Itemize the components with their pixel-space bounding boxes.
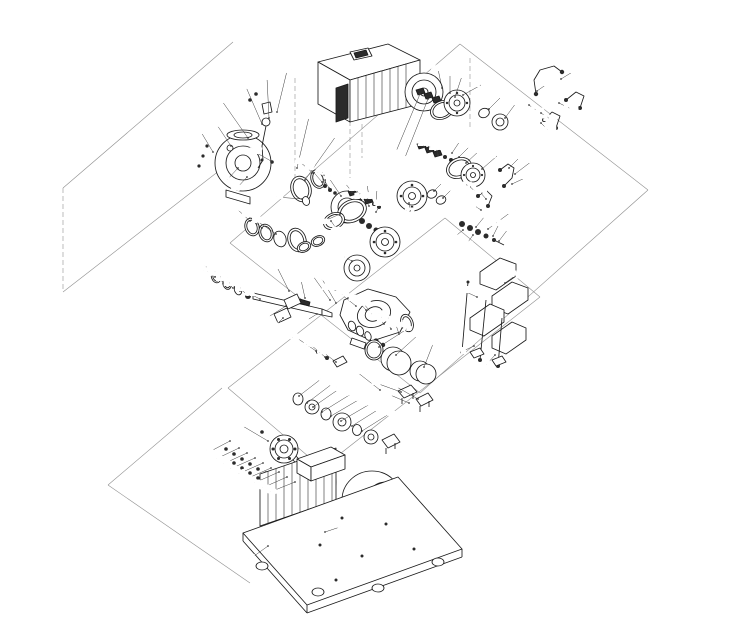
part-label: 108 — [459, 240, 473, 248]
diagram-shape — [366, 223, 372, 229]
part-label: 67 — [305, 163, 314, 171]
part-callout: 60c — [318, 348, 337, 363]
part-label: 7e — [353, 367, 363, 375]
part-label: 77b — [495, 91, 509, 99]
diagram-shape — [108, 388, 222, 485]
diagram-shape — [293, 393, 303, 405]
diagram-shape — [288, 438, 291, 441]
part-label: 217 — [248, 147, 262, 155]
diagram-shape — [224, 447, 228, 451]
part-label: 17d — [468, 201, 482, 209]
leader-endpoint — [261, 123, 263, 125]
diagram-shape — [426, 188, 438, 199]
leader-endpoint — [487, 228, 489, 230]
leader-endpoint — [419, 93, 421, 95]
leader-endpoint — [267, 440, 269, 442]
diagram-shape — [319, 544, 322, 547]
diagram-shape — [197, 164, 200, 167]
diagram-shape — [443, 155, 447, 159]
part-label: 17d — [542, 126, 556, 134]
part-label: 21 — [235, 284, 245, 292]
mge-grille — [336, 84, 348, 122]
part-callout: 66b — [298, 374, 328, 397]
leader-endpoint — [351, 425, 353, 427]
diagram-shape — [416, 364, 436, 384]
leader-endpoint — [540, 122, 542, 124]
diagram-shape — [500, 164, 514, 186]
leader-endpoint — [504, 282, 506, 284]
diagram-shape — [560, 70, 564, 74]
part-callout: 17a — [536, 79, 554, 92]
part-label: 43 — [295, 157, 304, 165]
leader-endpoint — [378, 346, 380, 348]
part-label: 77 — [476, 80, 485, 88]
part-label: 210 — [215, 96, 229, 104]
leader-endpoint — [375, 211, 377, 213]
leader-endpoint — [246, 452, 248, 454]
leader-endpoint — [267, 545, 269, 547]
leader-endpoint — [270, 160, 272, 162]
diagram-shape — [385, 523, 388, 526]
diagram-shape — [578, 106, 582, 110]
leader-endpoint — [261, 227, 263, 229]
part-label: 243b — [355, 192, 374, 200]
diagram-shape — [422, 195, 425, 198]
part-label: 17c — [526, 156, 539, 164]
diagram-shape — [364, 430, 378, 444]
part-callout: 10a — [351, 404, 386, 427]
part-label: 20 — [212, 120, 222, 128]
leader-endpoint — [212, 151, 214, 153]
part-callout: 77 — [462, 80, 485, 96]
leader-endpoint — [268, 117, 270, 119]
diagram-shape — [201, 154, 204, 157]
leader-endpoint — [254, 457, 256, 459]
leader-endpoint — [488, 108, 490, 110]
diagram-shape — [272, 448, 275, 451]
leader-endpoint — [304, 179, 306, 181]
leader-endpoint — [232, 287, 234, 289]
leader-endpoint — [560, 78, 562, 80]
leader-endpoint — [400, 391, 402, 393]
diagram-shape — [205, 144, 208, 147]
leader-endpoint — [462, 94, 464, 96]
part-label: 432 — [374, 199, 388, 207]
part-label: 77 — [339, 252, 348, 260]
part-callout: 208 — [239, 82, 263, 125]
diagram-canvas: 2092052082102012172022662643260264343676… — [0, 0, 752, 632]
part-label: 23b — [357, 299, 371, 307]
diagram-shape — [467, 225, 473, 231]
leader-endpoint — [294, 481, 296, 483]
leader-endpoint — [476, 296, 478, 298]
part-label: 108 — [478, 211, 492, 219]
part-callout: 77b — [488, 91, 509, 110]
volute-flange — [227, 130, 259, 140]
diagram-shape — [484, 234, 489, 239]
part-label: 17c — [474, 187, 487, 195]
part-label: 110a — [499, 224, 517, 232]
part-label: 17c — [568, 66, 581, 74]
leader-endpoint — [340, 195, 342, 197]
part-label: 104c — [256, 314, 274, 322]
part-label: 74 — [371, 378, 381, 386]
part-label: 7c — [384, 389, 393, 397]
leader-endpoint — [330, 415, 332, 417]
leader-endpoint — [473, 345, 475, 347]
diagram-shape — [534, 92, 538, 96]
part-label: 60 — [242, 210, 252, 218]
diagram-shape — [373, 241, 376, 244]
leader-endpoint — [270, 467, 272, 469]
diagram-shape — [470, 348, 484, 358]
part-label: 51 — [245, 289, 255, 297]
leader-endpoint — [423, 366, 425, 368]
diagram-shape — [294, 448, 297, 451]
part-callout: 17d — [468, 201, 482, 211]
leader-endpoint — [321, 181, 323, 183]
leader-endpoint — [262, 462, 264, 464]
part-callout: 17d — [540, 122, 556, 134]
part-label: 66 — [236, 420, 246, 428]
part-callout: 17c — [474, 187, 487, 200]
diagram-shape — [240, 457, 244, 461]
part-callout: 66 — [236, 420, 268, 442]
part-callout: 432 — [374, 199, 388, 213]
part-label: 7b — [402, 324, 412, 332]
part-label: 103 — [429, 143, 443, 151]
part-label: 7g — [511, 270, 521, 278]
foot-pad — [312, 588, 324, 596]
leader-endpoint — [365, 309, 367, 311]
diagram-shape — [232, 452, 236, 456]
diagram-shape — [413, 548, 416, 551]
leader-line — [424, 344, 433, 367]
part-label: 17d — [520, 172, 534, 180]
leader-endpoint — [485, 198, 487, 200]
leader-endpoint — [275, 233, 277, 235]
part-callout: 66f — [330, 394, 366, 417]
part-label: 60a — [290, 333, 303, 341]
diagram-shape — [466, 102, 468, 104]
diagram-shape — [498, 168, 502, 172]
part-label: 107 — [445, 234, 459, 242]
diagram-shape — [564, 98, 568, 102]
part-label: 103 — [397, 155, 411, 163]
leader-endpoint — [238, 447, 240, 449]
part-label: 66b — [269, 192, 283, 200]
leader-endpoint — [278, 471, 280, 473]
foot-pad — [432, 558, 444, 566]
diagram-shape — [481, 174, 483, 176]
diagram-shape — [463, 174, 465, 176]
part-label: 77 — [405, 207, 414, 215]
part-label: 7 — [416, 330, 421, 338]
leader-endpoint — [427, 98, 429, 100]
part-label: 208 — [239, 82, 253, 90]
part-label: 7h — [456, 347, 466, 355]
leader-endpoint — [339, 213, 341, 215]
leader-endpoint — [301, 198, 303, 200]
part-label: 43 — [331, 131, 340, 139]
leader-endpoint — [249, 220, 251, 222]
leader-endpoint — [475, 226, 477, 228]
part-label: 60b — [304, 340, 318, 348]
part-label: 7d — [459, 286, 469, 294]
leader-endpoint — [312, 406, 314, 408]
diagram-shape — [446, 102, 448, 104]
diagram-shape — [384, 252, 387, 255]
foot-pad — [372, 584, 384, 592]
part-label: 60c — [318, 348, 331, 356]
leader-endpoint — [246, 176, 248, 178]
diagram-shape — [256, 467, 260, 471]
leader-endpoint — [458, 156, 460, 158]
part-label: 17c — [544, 114, 557, 122]
leader-endpoint — [472, 234, 474, 236]
leader-endpoint — [282, 317, 284, 319]
leader-endpoint — [540, 112, 542, 114]
part-label: 26 — [231, 184, 241, 192]
leader-endpoint — [335, 361, 337, 363]
diagram-shape — [384, 230, 387, 233]
part-label: 226 — [194, 127, 208, 135]
part-callout: 17c — [540, 112, 556, 122]
leader-endpoint — [351, 260, 353, 262]
leader-line — [277, 267, 289, 291]
leader-endpoint — [514, 173, 516, 175]
diagram-shape — [459, 221, 465, 227]
diagram-shape — [365, 340, 383, 360]
diagram-shape — [261, 159, 264, 162]
leader-endpoint — [324, 531, 326, 533]
part-label: 6f — [246, 554, 254, 562]
leader-line — [396, 335, 418, 355]
diagram-shape — [323, 184, 327, 188]
leader-endpoint — [329, 299, 331, 301]
leader-endpoint — [324, 356, 326, 358]
diagram-shape — [361, 555, 364, 558]
part-label: 60e — [336, 521, 350, 529]
diagram-shape — [492, 238, 496, 242]
diagram-shape — [492, 356, 506, 366]
diagram-shape — [305, 400, 319, 414]
diagram-shape — [486, 204, 490, 208]
part-callout: 7a — [423, 339, 437, 368]
leader-endpoint — [304, 297, 306, 299]
leader-endpoint — [441, 87, 443, 89]
leader-endpoint — [288, 290, 290, 292]
part-label: 76 — [317, 274, 327, 282]
part-label: 72a — [315, 217, 328, 225]
leader-endpoint — [330, 220, 332, 222]
part-label: 66 — [299, 317, 309, 325]
leader-endpoint — [408, 402, 410, 404]
part-callout: 110a — [498, 224, 517, 242]
part-label: 17a — [540, 79, 553, 87]
leader-line — [201, 132, 213, 152]
part-callout: 209 — [276, 66, 294, 113]
diagram-shape — [472, 165, 474, 167]
leader-endpoint — [465, 162, 467, 164]
diagram-shape — [359, 218, 365, 224]
diagram-shape — [387, 351, 411, 375]
diagram-shape — [63, 42, 233, 188]
part-label: 17b — [564, 104, 578, 112]
leader-endpoint — [361, 430, 363, 432]
leader-endpoint — [296, 167, 298, 169]
part-callout: 77a — [504, 98, 523, 119]
diagram-shape — [411, 184, 414, 187]
leader-endpoint — [442, 197, 444, 199]
part-label: 26 — [252, 216, 262, 224]
part-label: 9a — [335, 384, 344, 392]
diagram-shape — [456, 112, 458, 114]
part-label: 77a — [509, 98, 522, 106]
part-label: 72a — [472, 146, 485, 154]
leader-endpoint — [286, 476, 288, 478]
part-callout: 108 — [475, 211, 492, 228]
leader-endpoint — [395, 354, 397, 356]
leader-endpoint — [462, 229, 464, 231]
part-label: 49 — [324, 173, 334, 181]
part-label: 72a — [455, 71, 468, 79]
leader-endpoint — [408, 202, 410, 204]
leader-endpoint — [494, 354, 496, 356]
diagram-shape — [333, 191, 337, 195]
diagram-shape — [277, 457, 280, 460]
part-callout: 7d — [459, 286, 477, 298]
part-label: 36a — [335, 290, 348, 298]
part-label: 66e — [382, 409, 396, 417]
diagram-shape — [382, 434, 400, 448]
part-label: 109 — [504, 207, 518, 215]
leader-endpoint — [449, 92, 451, 94]
leader-line — [277, 71, 287, 112]
leader-endpoint — [321, 411, 323, 413]
diagram-shape — [502, 184, 506, 188]
diagram-shape — [260, 430, 264, 434]
part-callout: 9a — [312, 384, 343, 408]
part-callout: 66e — [361, 409, 396, 432]
part-label: 7i — [483, 360, 490, 368]
part-label: 7a — [429, 339, 438, 347]
diagram-shape — [277, 438, 280, 441]
leader-endpoint — [230, 145, 232, 147]
diagram-shape — [395, 241, 398, 244]
leader-endpoint — [340, 420, 342, 422]
part-label: 6 — [225, 175, 230, 183]
leader-endpoint — [306, 402, 308, 404]
diagram-shape — [272, 230, 288, 249]
part-label: 205 — [260, 73, 274, 81]
diagram-shape — [333, 413, 351, 431]
part-callout: 17b — [558, 102, 578, 112]
leader-endpoint — [390, 328, 392, 330]
leader-endpoint — [558, 102, 560, 104]
leader-endpoint — [247, 137, 249, 139]
leader-endpoint — [454, 96, 456, 98]
leader-endpoint — [383, 323, 385, 325]
part-label: 433 — [331, 226, 345, 234]
leader-endpoint — [437, 154, 439, 156]
part-label: 77 — [492, 151, 501, 159]
leader-endpoint — [492, 235, 494, 237]
diagram-shape — [353, 425, 362, 436]
diagram-shape — [420, 190, 648, 393]
foot-pad — [256, 562, 268, 570]
part-label: 209 — [280, 66, 294, 74]
leader-endpoint — [335, 302, 337, 304]
leader-endpoint — [511, 183, 513, 185]
leader-endpoint — [433, 190, 435, 192]
part-callout: 17a — [508, 152, 527, 169]
part-label: 109 — [370, 184, 384, 192]
part-callout: 66a — [340, 399, 377, 422]
leader-endpoint — [451, 152, 453, 154]
leader-endpoint — [259, 298, 261, 300]
leader-endpoint — [508, 167, 510, 169]
part-label: 66e — [263, 487, 277, 495]
part-callout: 26a — [442, 184, 459, 199]
diagram-shape — [467, 281, 470, 284]
part-callout: 11 — [272, 262, 289, 292]
diagram-shape — [310, 234, 327, 249]
wedge-block — [274, 308, 291, 323]
diagram-shape — [248, 462, 252, 466]
diagram-shape — [262, 118, 270, 126]
diagram-shape — [475, 229, 481, 235]
diagram-shape — [478, 358, 482, 362]
exploded-parts-diagram-page: 2092052082102012172022662643260264343676… — [0, 0, 752, 632]
part-callout: 66 — [299, 313, 317, 325]
diagram-shape — [108, 485, 250, 583]
diagram-shape — [400, 195, 403, 198]
leader-endpoint — [368, 205, 370, 207]
leader-endpoint — [237, 167, 239, 169]
diagram-shape — [492, 114, 508, 130]
part-label: 26a — [445, 184, 458, 192]
leader-endpoint — [417, 398, 419, 400]
diagram-shape — [227, 145, 233, 151]
leader-endpoint — [298, 395, 300, 397]
leader-endpoint — [285, 305, 287, 307]
part-label: 104d — [265, 322, 284, 330]
volute-foot — [226, 190, 250, 204]
diagram-shape — [254, 92, 258, 96]
sensor-body — [262, 102, 272, 114]
leader-endpoint — [379, 389, 381, 391]
part-label: 201 — [302, 112, 316, 120]
part-callout: 66c — [321, 389, 357, 413]
leader-endpoint — [481, 168, 483, 170]
part-callout: 226 — [194, 127, 214, 153]
leader-endpoint — [328, 187, 330, 189]
diagram-shape — [288, 457, 291, 460]
part-label: 11 — [272, 262, 282, 270]
diagram-shape — [350, 338, 366, 349]
leader-endpoint — [316, 313, 318, 315]
leader-line — [246, 87, 262, 124]
leader-endpoint — [536, 90, 538, 92]
leader-endpoint — [276, 111, 278, 113]
diagram-shape — [335, 579, 338, 582]
leader-endpoint — [498, 240, 500, 242]
diagram-shape — [341, 517, 344, 520]
leader-endpoint — [504, 117, 506, 119]
part-label: 75 — [390, 381, 400, 389]
leader-endpoint — [229, 440, 231, 442]
